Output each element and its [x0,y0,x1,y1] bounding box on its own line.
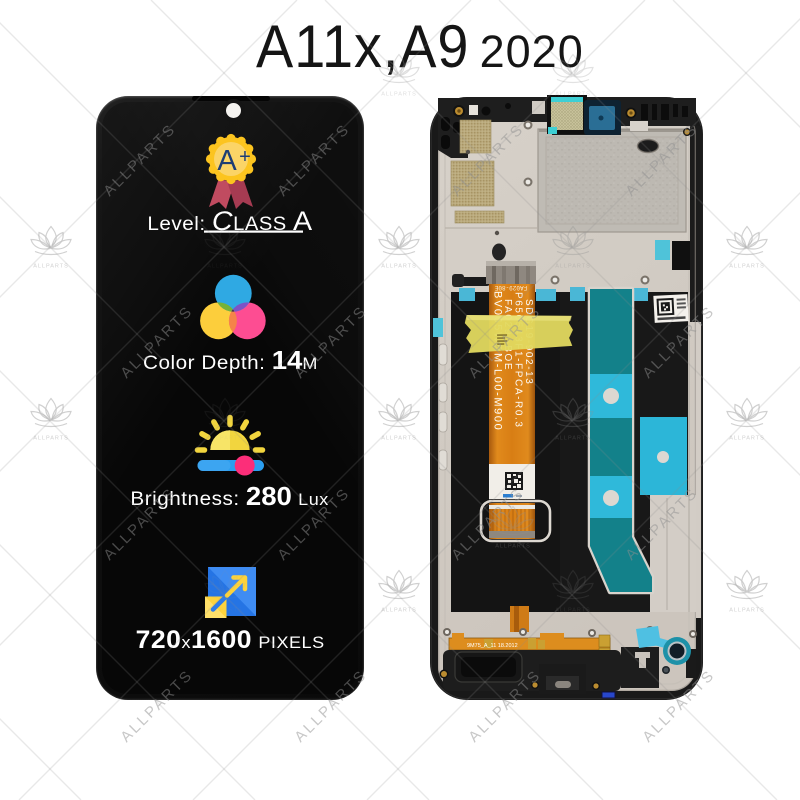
svg-text:FA029-80E: FA029-80E [494,284,527,291]
svg-text:BV065WBM-L00-M900: BV065WBM-L00-M900 [492,291,504,431]
svg-text:9M75_A_11 18.2012: 9M75_A_11 18.2012 [467,643,518,649]
svg-text:P650543F1-FPCA-R0.3: P650543F1-FPCA-R0.3 [513,292,524,429]
